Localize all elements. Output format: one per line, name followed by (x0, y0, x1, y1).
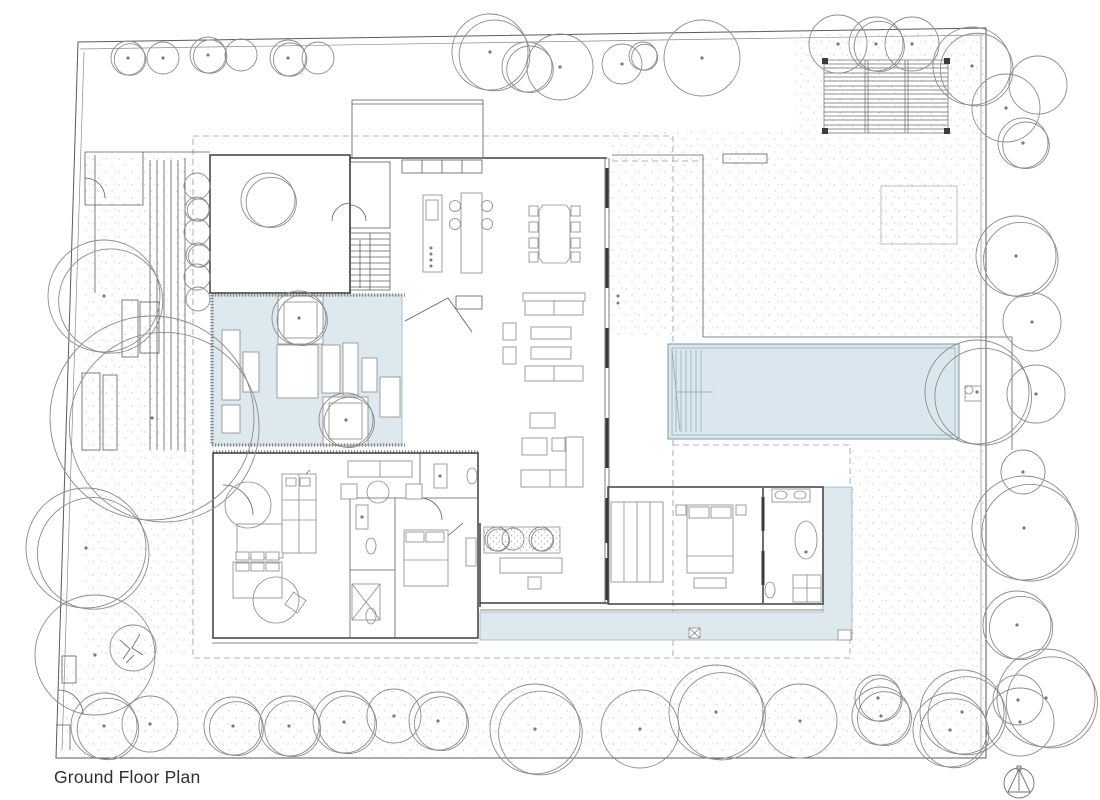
sand-area (881, 186, 957, 244)
north-arrow-icon (1004, 766, 1034, 798)
pool-water (668, 344, 959, 439)
floor-plan-canvas (0, 0, 1100, 800)
pool-pump (965, 386, 981, 401)
plan-title: Ground Floor Plan (54, 767, 200, 788)
floor-plan-page: Ground Floor Plan (0, 0, 1100, 800)
